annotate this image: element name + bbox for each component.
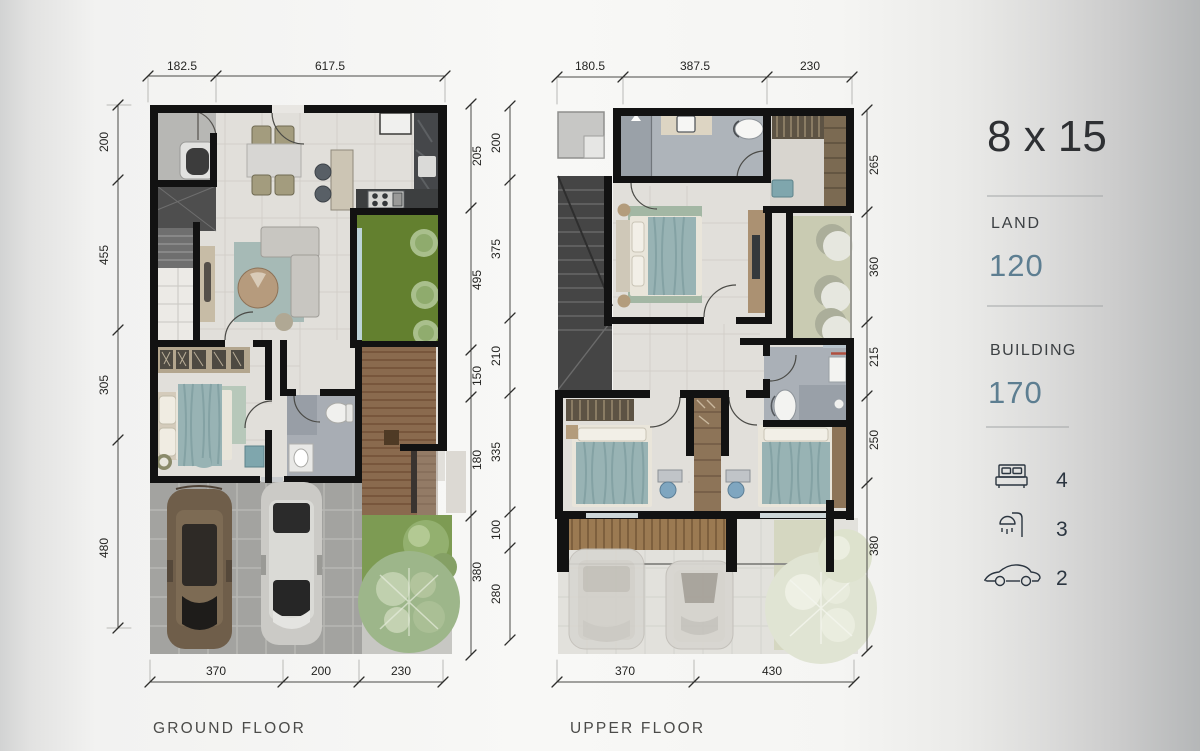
svg-text:BUILDING: BUILDING	[990, 342, 1077, 359]
svg-text:455: 455	[97, 245, 111, 265]
svg-text:GROUND FLOOR: GROUND FLOOR	[153, 720, 306, 737]
svg-text:360: 360	[867, 257, 881, 277]
svg-text:180.5: 180.5	[575, 59, 605, 73]
svg-text:4: 4	[1056, 469, 1068, 492]
svg-text:387.5: 387.5	[680, 59, 710, 73]
svg-text:380: 380	[470, 562, 484, 582]
svg-text:430: 430	[762, 664, 782, 678]
svg-text:210: 210	[489, 346, 503, 366]
svg-text:335: 335	[489, 442, 503, 462]
svg-text:230: 230	[800, 59, 820, 73]
svg-text:200: 200	[97, 132, 111, 152]
svg-text:305: 305	[97, 375, 111, 395]
svg-text:182.5: 182.5	[167, 59, 197, 73]
svg-text:230: 230	[391, 664, 411, 678]
svg-text:3: 3	[1056, 518, 1068, 541]
svg-text:100: 100	[489, 520, 503, 540]
svg-text:LAND: LAND	[991, 215, 1041, 232]
svg-text:370: 370	[206, 664, 226, 678]
svg-text:180: 180	[470, 450, 484, 470]
svg-text:170: 170	[988, 375, 1043, 410]
svg-text:495: 495	[470, 270, 484, 290]
svg-text:380: 380	[867, 536, 881, 556]
svg-text:375: 375	[489, 239, 503, 259]
svg-text:2: 2	[1056, 567, 1068, 590]
svg-text:370: 370	[615, 664, 635, 678]
svg-text:215: 215	[867, 347, 881, 367]
svg-text:205: 205	[470, 146, 484, 166]
svg-text:617.5: 617.5	[315, 59, 345, 73]
svg-text:200: 200	[311, 664, 331, 678]
svg-text:250: 250	[867, 430, 881, 450]
svg-text:480: 480	[97, 538, 111, 558]
svg-text:200: 200	[489, 133, 503, 153]
svg-text:UPPER FLOOR: UPPER FLOOR	[570, 720, 705, 737]
svg-text:120: 120	[989, 248, 1044, 283]
svg-text:150: 150	[470, 366, 484, 386]
svg-text:8 x 15: 8 x 15	[987, 112, 1107, 161]
svg-text:265: 265	[867, 155, 881, 175]
svg-text:280: 280	[489, 584, 503, 604]
